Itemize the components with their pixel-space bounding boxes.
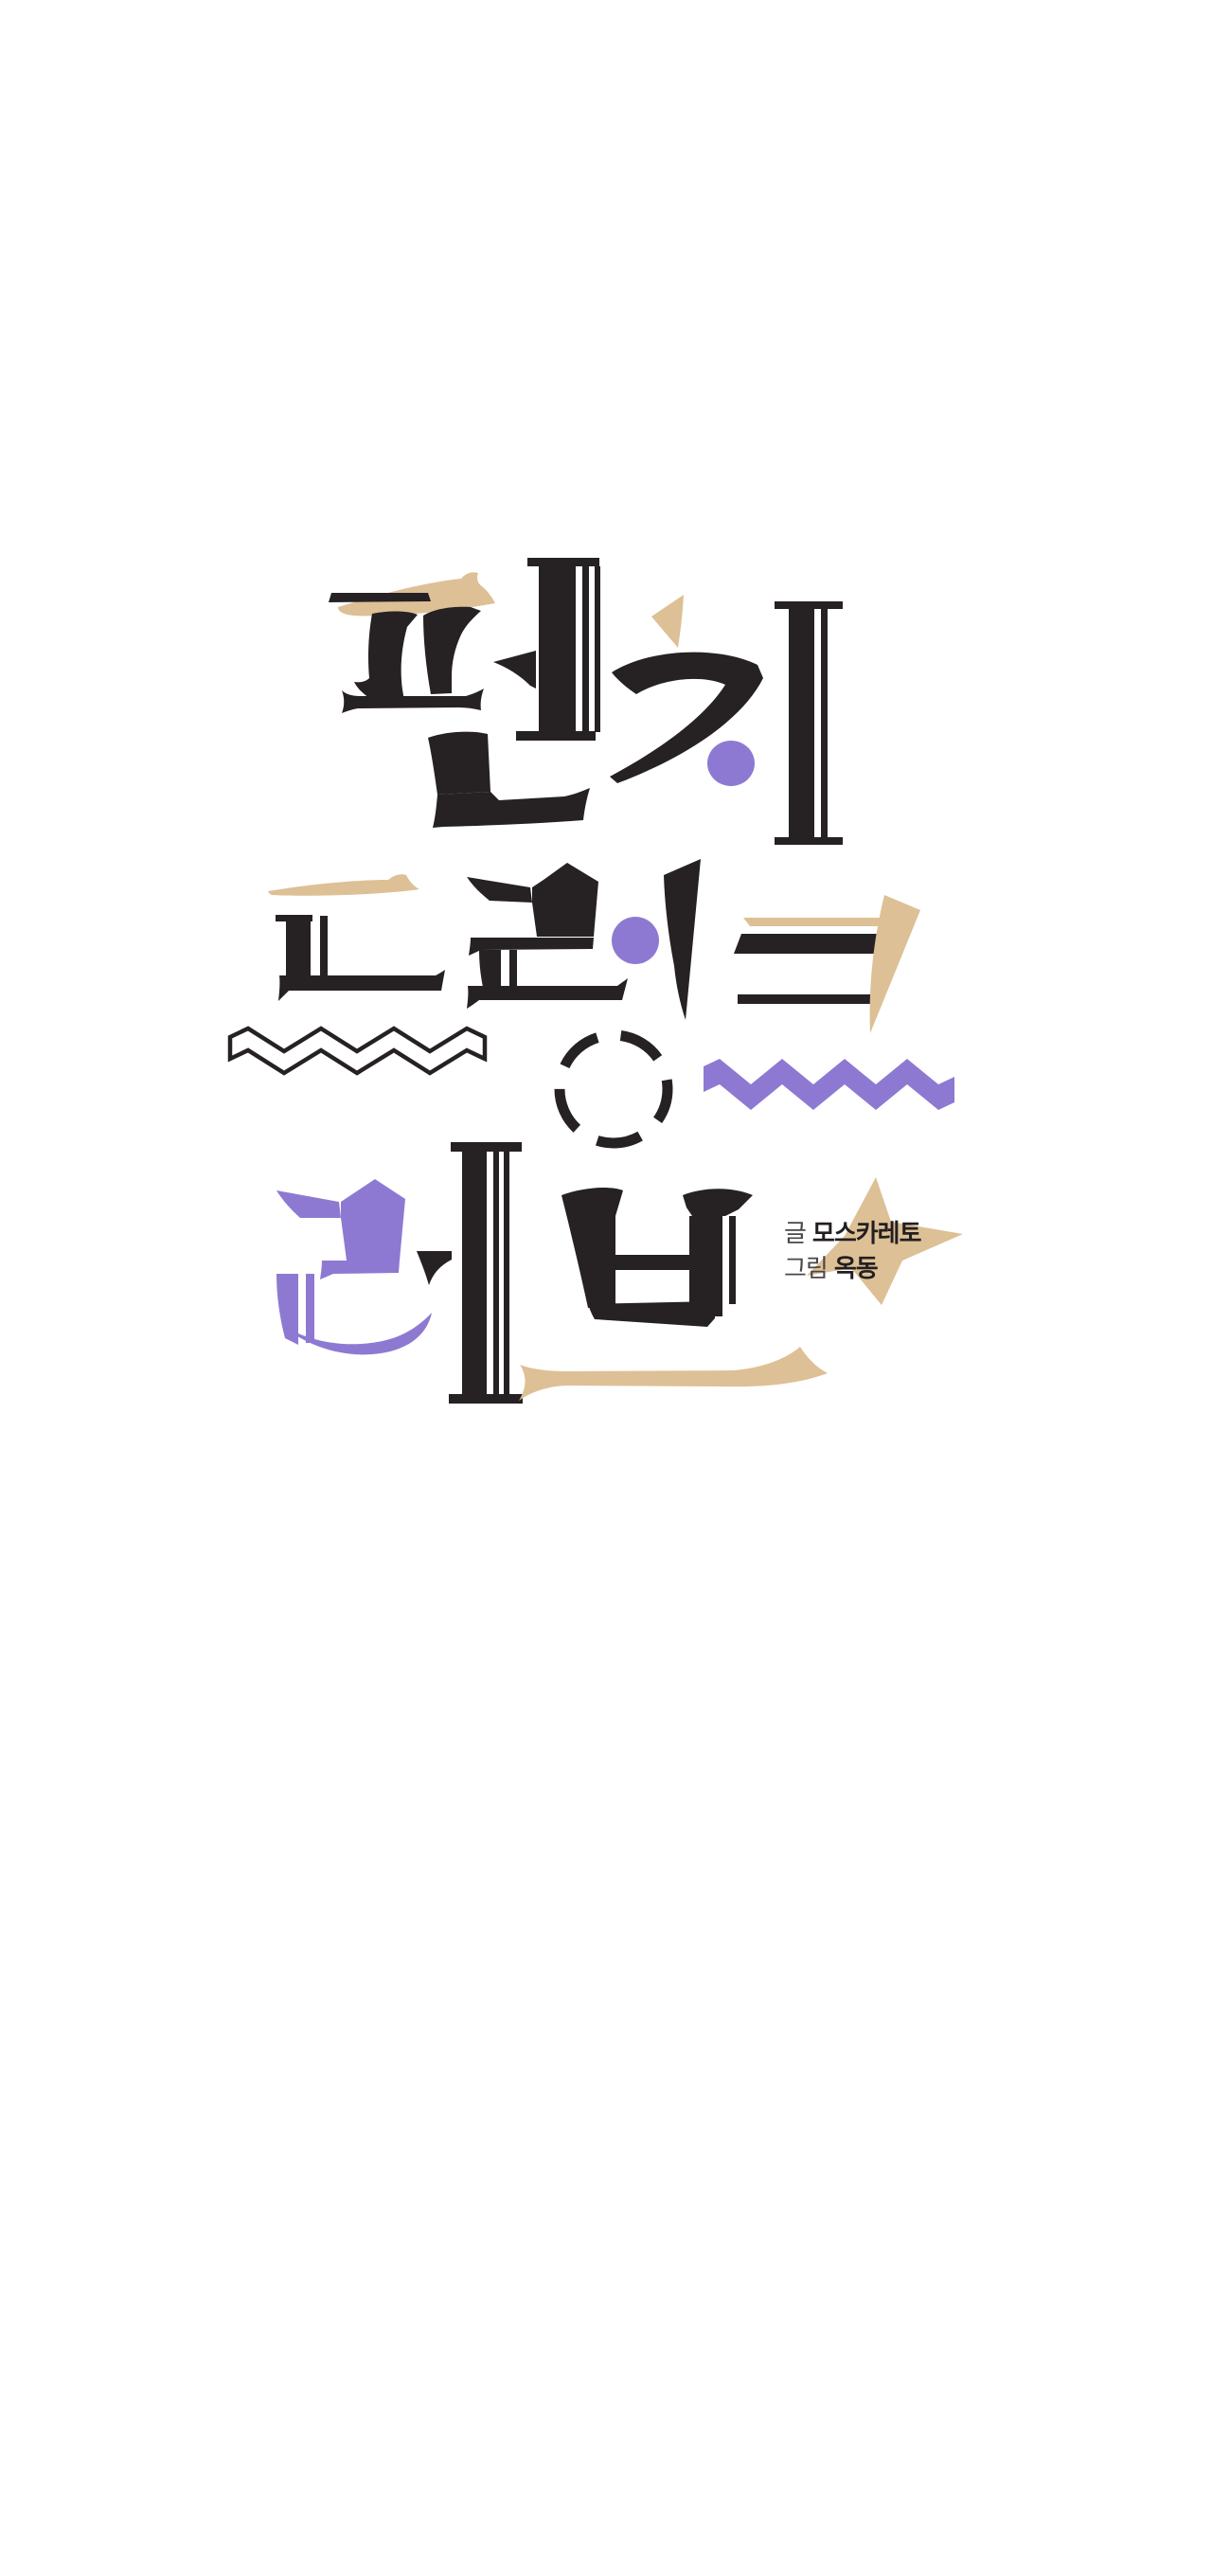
keu-kieuk-thick-bar <box>734 934 881 954</box>
logo-word-deu-reong-keu: 드렁크 <box>230 859 954 1143</box>
reong-eo-tapered-bar <box>664 859 701 1020</box>
writer-credit: 글모스카레토 <box>784 1216 921 1251</box>
reo-rieul-block <box>341 1179 405 1261</box>
reo-eo-bar-thick <box>462 1152 487 1394</box>
black-zigzag-outline-icon <box>230 1029 485 1073</box>
beu-bieup-midbar <box>615 1255 689 1270</box>
peon-eo-bar-thick <box>539 566 576 732</box>
dashed-circle-icon <box>560 1035 668 1143</box>
peon-eo-bar-cap-bottom <box>516 731 596 741</box>
tan-stroke-deu-icon <box>268 874 419 896</box>
reo-rieul-wing <box>276 1190 341 1218</box>
writer-name: 모스카레토 <box>812 1219 921 1247</box>
reo-eo-bar-line2 <box>504 1152 509 1394</box>
tan-triangle-icon <box>651 595 684 648</box>
beu-bieup-right-thin-line <box>729 1216 736 1304</box>
peon-pieup-left-stroke <box>354 611 418 704</box>
reo-rieul-swash <box>281 1313 432 1354</box>
beu-bieup-right-wing <box>683 1189 753 1216</box>
reo-eo-bar-cap-bottom <box>449 1394 523 1404</box>
keu-kieuk-thin-bar <box>738 994 872 1004</box>
reo-eo-bar-cap-top <box>451 1142 522 1152</box>
logo-word-peon-chi: 펀치 <box>329 558 843 845</box>
purple-dot-icon <box>707 741 755 786</box>
artist-name: 옥동 <box>834 1254 878 1282</box>
peon-pieup-right-stroke <box>423 607 481 694</box>
peon-eo-bar-line2 <box>595 566 600 732</box>
purple-zigzag-icon <box>704 1059 954 1110</box>
chi-i-bar-line <box>821 609 828 837</box>
reo-eo-dash <box>417 1251 452 1285</box>
title-splash-page: 펀치 드렁크 러브 펀치 <box>0 0 1212 2576</box>
peon-eo-bar-cap-top <box>527 558 599 566</box>
tan-underline-icon <box>519 1347 828 1401</box>
chi-i-bar-cap-bottom <box>775 837 843 845</box>
deu-digeut-thick-bar <box>286 915 311 985</box>
deu-digeut-thin-line <box>320 916 328 982</box>
reong-rieul-block <box>532 863 598 937</box>
beu-bieup-left-stroke <box>561 1188 623 1308</box>
tan-triangle-keu-icon <box>870 895 920 1033</box>
reong-rieul-wing <box>467 877 532 903</box>
peon-nieun-vertical <box>428 732 490 795</box>
peon-eo-bar-line1 <box>582 566 589 732</box>
writer-label: 글 <box>784 1219 806 1247</box>
artist-label: 그림 <box>784 1254 828 1282</box>
chi-i-bar-thick <box>789 609 814 837</box>
reo-eo-bar-line1 <box>493 1152 499 1394</box>
beu-bieup-right-thick <box>689 1216 722 1316</box>
peon-pieup-top-bar <box>329 593 431 602</box>
peon-eo-dash <box>493 651 536 689</box>
credits-block: 글모스카레토 그림옥동 <box>784 1216 921 1286</box>
title-logo-art: 펀치 드렁크 러브 펀치 <box>0 0 1212 2576</box>
reo-rieul-thin-line <box>306 1274 314 1343</box>
peon-nieun-bar <box>433 788 590 828</box>
reo-rieul-midbar <box>320 1261 400 1279</box>
logo-word-reo-beu: 러브 <box>276 1142 828 1404</box>
artist-credit: 그림옥동 <box>784 1251 921 1286</box>
purple-dot-icon <box>612 917 659 964</box>
tan-line-keu-icon <box>743 918 881 926</box>
chi-i-bar-cap-top <box>775 601 843 609</box>
